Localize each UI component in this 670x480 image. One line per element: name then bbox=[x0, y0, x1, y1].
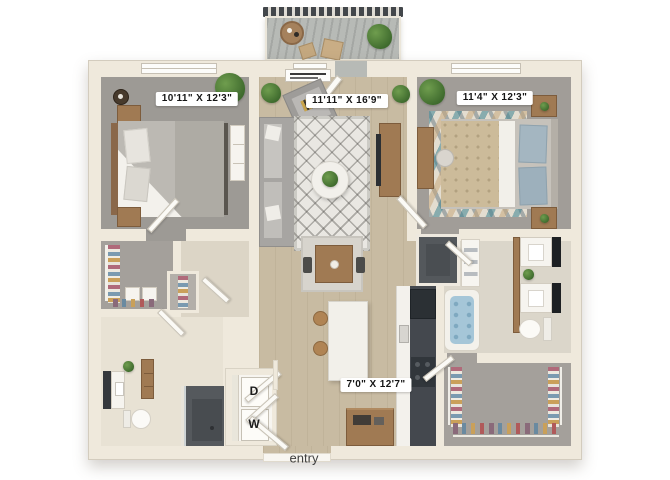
toilet-bowl bbox=[131, 409, 151, 429]
vanity-mirror bbox=[103, 371, 111, 409]
balcony-deck bbox=[265, 16, 401, 61]
bed-right bbox=[441, 119, 558, 209]
nightstand-plant bbox=[540, 214, 549, 223]
refrigerator bbox=[410, 289, 436, 319]
kitchen-island bbox=[328, 301, 368, 381]
unit-outline: D W bbox=[88, 60, 582, 460]
balcony-plant bbox=[367, 24, 392, 49]
vent-line bbox=[290, 77, 318, 79]
balcony-chair bbox=[320, 38, 344, 61]
headboard bbox=[551, 119, 558, 209]
kitchen-counter bbox=[396, 286, 410, 446]
media-cabinet bbox=[285, 69, 331, 82]
linen-closet bbox=[167, 271, 199, 313]
shoe-row bbox=[453, 423, 559, 434]
vent-line bbox=[290, 73, 326, 75]
tv bbox=[376, 134, 381, 186]
tv-console bbox=[379, 123, 401, 197]
hanging-clothes bbox=[548, 367, 559, 427]
dining-table bbox=[315, 245, 353, 283]
nightstand bbox=[531, 95, 557, 117]
shower-glass bbox=[184, 386, 186, 446]
dining-chair bbox=[356, 257, 365, 273]
plant bbox=[419, 79, 445, 105]
nightstand bbox=[531, 207, 557, 229]
plant bbox=[523, 269, 534, 280]
dresser bbox=[230, 125, 245, 181]
white-runner bbox=[499, 121, 515, 207]
desk-chair bbox=[436, 149, 454, 167]
toilet bbox=[519, 317, 555, 341]
window bbox=[451, 63, 521, 74]
nightstand-plant bbox=[540, 102, 549, 111]
vanity-mirror bbox=[552, 237, 561, 267]
plant bbox=[261, 83, 281, 103]
plant bbox=[392, 85, 410, 103]
shelf-line bbox=[144, 386, 153, 387]
dining-chair bbox=[303, 257, 312, 273]
balcony-table bbox=[280, 21, 304, 45]
vanity-sink bbox=[520, 283, 552, 313]
bar-stool bbox=[313, 311, 328, 326]
wall-clock bbox=[113, 89, 129, 105]
toilet-tank bbox=[543, 317, 552, 341]
pillow bbox=[123, 166, 150, 202]
burner bbox=[415, 375, 420, 380]
shower-floor bbox=[192, 399, 222, 441]
dimension-label-bedroom-left: 10'11" X 12'3" bbox=[156, 92, 238, 106]
hanging-clothes bbox=[178, 276, 188, 308]
sink bbox=[115, 382, 124, 396]
shelf-line bbox=[144, 373, 153, 374]
entry-bench bbox=[346, 408, 394, 446]
plate bbox=[287, 28, 292, 33]
plant bbox=[123, 361, 134, 372]
shower bbox=[416, 234, 460, 286]
plate bbox=[294, 32, 299, 37]
vanity-counter bbox=[111, 371, 125, 409]
table-plant bbox=[322, 171, 338, 187]
drawer-line bbox=[233, 163, 244, 164]
toilet-bowl bbox=[519, 319, 541, 339]
bathtub bbox=[444, 289, 480, 351]
basin bbox=[528, 290, 544, 307]
drawer-line bbox=[233, 144, 244, 145]
drain bbox=[210, 426, 214, 430]
bar-stool bbox=[313, 341, 328, 356]
tub-water bbox=[450, 296, 474, 344]
closet-rod bbox=[560, 367, 562, 425]
pillow bbox=[518, 167, 547, 206]
washer-label: W bbox=[240, 408, 268, 440]
books bbox=[374, 417, 384, 425]
shower bbox=[181, 386, 224, 446]
balcony-doorway bbox=[335, 61, 367, 77]
basin bbox=[528, 244, 544, 261]
floor-plan-image: D W bbox=[0, 0, 670, 480]
window bbox=[141, 63, 217, 74]
kitchen-sink bbox=[399, 325, 409, 343]
toilet-tank bbox=[123, 410, 131, 428]
coffee-table bbox=[311, 161, 349, 199]
dimension-label-living-room: 11'11" X 16'9" bbox=[306, 94, 388, 108]
throw-pillow bbox=[265, 125, 282, 142]
closet-rod bbox=[448, 367, 450, 425]
dimension-label-kitchen: 7'0" X 12'7" bbox=[340, 378, 411, 392]
wall-stub bbox=[273, 360, 278, 390]
headboard bbox=[111, 123, 118, 215]
vanity-sink bbox=[520, 237, 552, 267]
hanging-clothes bbox=[108, 245, 120, 303]
closet-rod bbox=[453, 435, 559, 437]
burner bbox=[415, 362, 420, 367]
burner bbox=[425, 362, 430, 367]
throw-pillow bbox=[265, 205, 281, 221]
dryer-label: D bbox=[240, 376, 268, 406]
entry-label: entry bbox=[290, 451, 319, 466]
centerpiece bbox=[330, 260, 339, 269]
cabinet-strip bbox=[232, 375, 239, 441]
balcony-chair bbox=[298, 42, 317, 60]
sofa bbox=[259, 117, 297, 247]
dimension-label-bedroom-right: 11'4" X 12'3" bbox=[457, 91, 533, 105]
shower-floor bbox=[426, 244, 450, 276]
books bbox=[353, 415, 371, 425]
footboard bbox=[224, 123, 228, 215]
hanging-clothes bbox=[451, 367, 462, 427]
bath-cabinet bbox=[141, 359, 154, 399]
toilet bbox=[123, 409, 153, 429]
clock-face bbox=[118, 94, 123, 99]
vanity-mirror bbox=[552, 283, 561, 313]
nightstand bbox=[117, 207, 141, 227]
blanket bbox=[175, 121, 224, 217]
shoe-row bbox=[113, 299, 157, 307]
desk bbox=[417, 127, 434, 189]
pillow bbox=[123, 128, 150, 164]
pillow bbox=[518, 125, 547, 164]
